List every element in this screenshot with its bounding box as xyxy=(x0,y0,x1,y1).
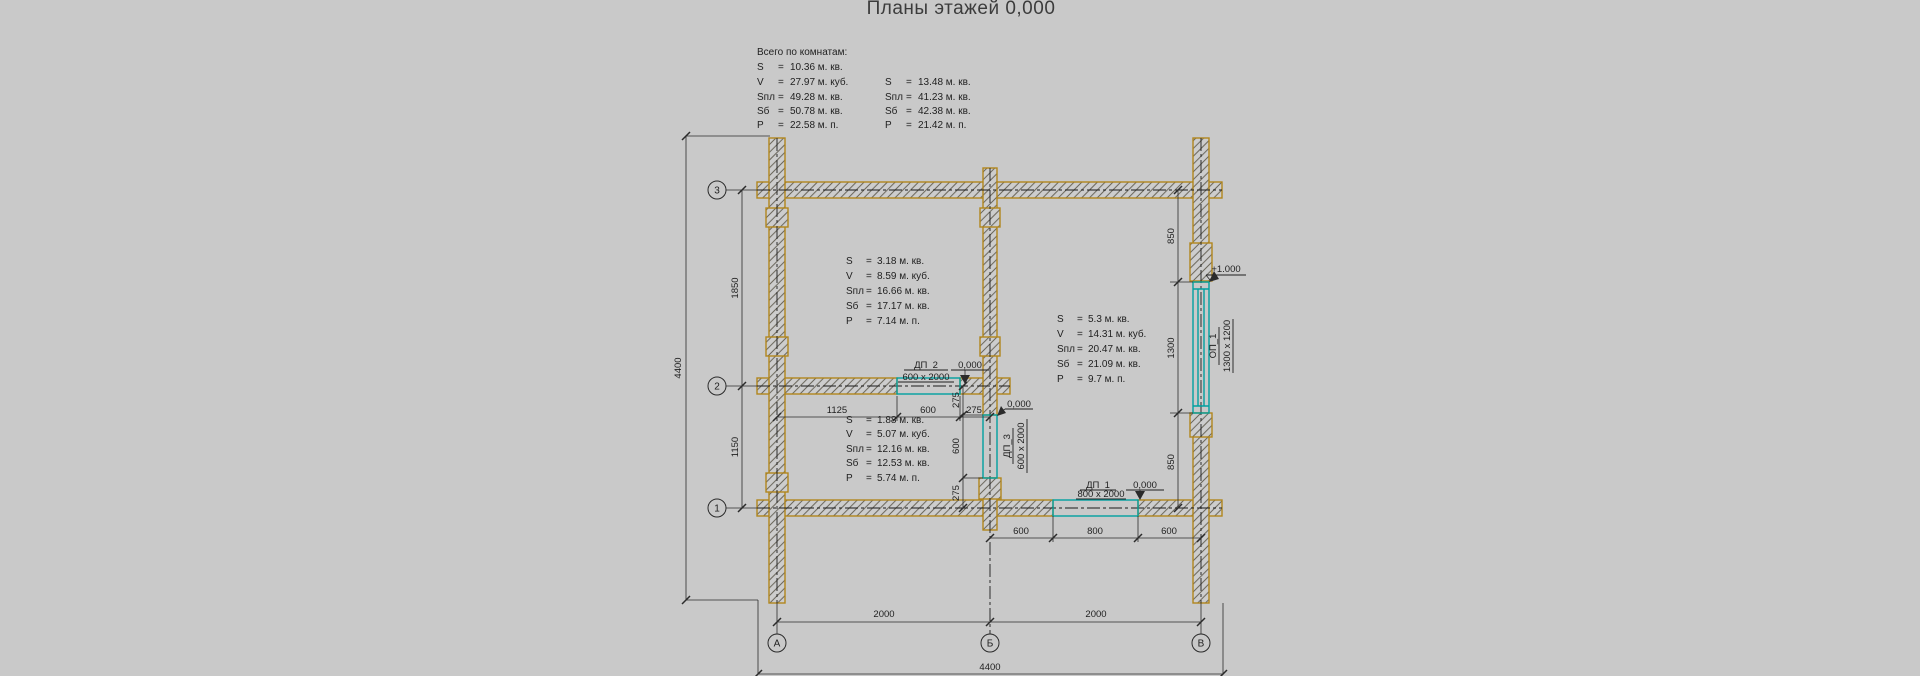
room2-r0-eq: = xyxy=(866,415,872,426)
room2-r1-k: V xyxy=(846,429,853,440)
sum1-r1-eq: = xyxy=(778,77,784,88)
sum2-r3-v: 21.42 м. п. xyxy=(918,120,966,131)
dim-dp1-600-right: 600 xyxy=(1161,526,1177,537)
level-dp2: 0,000 xyxy=(958,360,982,371)
sum1-r3-eq: = xyxy=(778,106,784,117)
room1-r0-v: 3.18 м. кв. xyxy=(877,256,924,267)
room3-r1-eq: = xyxy=(1077,329,1083,340)
dim-dp2-1125: 1125 xyxy=(827,405,847,416)
dim-bottom-2000-left: 2000 xyxy=(873,609,894,620)
sum1-r0-k: S xyxy=(757,62,764,73)
room3-r1-k: V xyxy=(1057,329,1064,340)
sum1-r4-eq: = xyxy=(778,120,784,131)
room3-r4-k: P xyxy=(1057,374,1064,385)
dim-dp3-600: 600 xyxy=(951,438,962,454)
tag-dp1-size: 800 x 2000 xyxy=(1077,489,1124,500)
summary-heading: Всего по комнатам: xyxy=(757,47,847,58)
walls xyxy=(757,138,1222,603)
room3-r0-v: 5.3 м. кв. xyxy=(1088,314,1130,325)
dim-dp3-275-top: 275 xyxy=(951,392,962,408)
sum1-r3-v: 50.78 м. кв. xyxy=(790,106,843,117)
room1-r4-k: P xyxy=(846,316,853,327)
room1-r0-k: S xyxy=(846,256,853,267)
tag-op1-size: 1300 x 1200 xyxy=(1222,320,1233,372)
tag-dp2-size: 600 x 2000 xyxy=(902,372,949,383)
room-info-top-left: S = 3.18 м. кв. V = 8.59 м. куб. Sпл = 1… xyxy=(846,256,930,327)
axis-label-2: 2 xyxy=(714,382,720,393)
dim-dp3-275-bottom: 275 xyxy=(951,485,962,501)
sum2-r2-v: 42.38 м. кв. xyxy=(918,106,971,117)
sum1-r2-v: 49.28 м. кв. xyxy=(790,92,843,103)
room3-r3-eq: = xyxy=(1077,359,1083,370)
tag-dp3: ДП_3 xyxy=(1002,434,1013,458)
room1-r1-k: V xyxy=(846,271,853,282)
summary-block-total: Всего по комнатам: S = 10.36 м. кв. V = … xyxy=(757,47,848,131)
level-dp1: 0,000 xyxy=(1133,480,1157,491)
tag-dp3-size: 600 x 2000 xyxy=(1016,422,1027,469)
room3-r0-eq: = xyxy=(1077,314,1083,325)
room2-r4-k: P xyxy=(846,473,853,484)
room1-r0-eq: = xyxy=(866,256,872,267)
sum2-r1-eq: = xyxy=(906,92,912,103)
room2-r0-k: S xyxy=(846,415,853,426)
room2-r2-k: Sпл xyxy=(846,444,864,455)
axis-label-3: 3 xyxy=(714,186,720,197)
room-info-bottom-left: S = 1.88 м. кв. V = 5.07 м. куб. Sпл = 1… xyxy=(846,415,930,484)
dim-bottom-total: 4400 xyxy=(979,662,1000,673)
room1-r3-eq: = xyxy=(866,301,872,312)
dim-bottom-2000-right: 2000 xyxy=(1085,609,1106,620)
page-title: Планы этажей 0,000 xyxy=(867,0,1056,19)
sum1-r4-v: 22.58 м. п. xyxy=(790,120,838,131)
dim-dp2-275: 275 xyxy=(966,405,982,416)
sum2-r0-k: S xyxy=(885,77,892,88)
room1-r4-eq: = xyxy=(866,316,872,327)
room2-r1-eq: = xyxy=(866,429,872,440)
dim-right-850-bottom: 850 xyxy=(1166,454,1177,470)
dim-left-1150: 1150 xyxy=(730,437,741,457)
room1-r1-v: 8.59 м. куб. xyxy=(877,270,930,282)
room1-r4-v: 7.14 м. п. xyxy=(877,316,920,327)
sum1-r1-k: V xyxy=(757,77,764,88)
room2-r2-v: 12.16 м. кв. xyxy=(877,444,930,455)
sum1-r2-k: Sпл xyxy=(757,92,775,103)
axis-label-a: А xyxy=(774,639,781,650)
axis-label-v: В xyxy=(1198,639,1205,650)
sum1-r4-k: P xyxy=(757,120,764,131)
room2-r3-v: 12.53 м. кв. xyxy=(877,458,930,469)
room2-r3-k: Sб xyxy=(846,457,859,469)
dim-dp1-800: 800 xyxy=(1087,526,1103,537)
level-op1: +1.000 xyxy=(1211,264,1240,275)
room3-r0-k: S xyxy=(1057,314,1064,325)
room1-r3-v: 17.17 м. кв. xyxy=(877,301,930,312)
sum1-r0-eq: = xyxy=(778,62,784,73)
room2-r3-eq: = xyxy=(866,458,872,469)
room2-r1-v: 5.07 м. куб. xyxy=(877,428,930,440)
sum2-r2-eq: = xyxy=(906,106,912,117)
openings xyxy=(897,282,1209,516)
door-dp3 xyxy=(983,415,997,478)
axis-label-b: Б xyxy=(987,639,994,650)
sum1-r0-v: 10.36 м. кв. xyxy=(790,62,843,73)
room1-r2-eq: = xyxy=(866,286,872,297)
room2-r4-v: 5.74 м. п. xyxy=(877,473,920,484)
dim-right-1300: 1300 xyxy=(1166,337,1177,358)
room2-r2-eq: = xyxy=(866,444,872,455)
room3-r3-v: 21.09 м. кв. xyxy=(1088,359,1141,370)
room3-r4-eq: = xyxy=(1077,374,1083,385)
sum2-r2-k: Sб xyxy=(885,105,898,117)
dim-left-total: 4400 xyxy=(673,357,684,378)
tag-dp2: ДП_2 xyxy=(914,360,938,371)
room-info-right: S = 5.3 м. кв. V = 14.31 м. куб. Sпл = 2… xyxy=(1057,314,1146,385)
axis-label-1: 1 xyxy=(714,504,720,515)
dim-right-850-top: 850 xyxy=(1166,228,1177,244)
room1-r1-eq: = xyxy=(866,271,872,282)
sum1-r1-v: 27.97 м. куб. xyxy=(790,76,848,88)
room3-r1-v: 14.31 м. куб. xyxy=(1088,328,1146,340)
tag-op1: ОП_1 xyxy=(1208,334,1219,359)
sum2-r3-k: P xyxy=(885,120,892,131)
level-dp3: 0,000 xyxy=(1007,399,1031,410)
sum1-r3-k: Sб xyxy=(757,105,770,117)
room2-r4-eq: = xyxy=(866,473,872,484)
room1-r2-v: 16.66 м. кв. xyxy=(877,286,930,297)
room1-r3-k: Sб xyxy=(846,300,859,312)
room3-r2-k: Sпл xyxy=(1057,344,1075,355)
room3-r4-v: 9.7 м. п. xyxy=(1088,374,1125,385)
summary-block-2: S = 13.48 м. кв. Sпл = 41.23 м. кв. Sб =… xyxy=(885,77,971,131)
room2-r0-v: 1.88 м. кв. xyxy=(877,415,924,426)
sum2-r3-eq: = xyxy=(906,120,912,131)
sum1-r2-eq: = xyxy=(778,92,784,103)
sum2-r0-eq: = xyxy=(906,77,912,88)
sum2-r0-v: 13.48 м. кв. xyxy=(918,77,971,88)
sum2-r1-v: 41.23 м. кв. xyxy=(918,92,971,103)
floor-plan-svg: Планы этажей 0,000 xyxy=(0,0,1920,676)
room3-r3-k: Sб xyxy=(1057,358,1070,370)
dim-left-1850: 1850 xyxy=(730,277,741,298)
drawing-canvas: Планы этажей 0,000 xyxy=(0,0,1920,676)
room3-r2-eq: = xyxy=(1077,344,1083,355)
dim-dp1-600-left: 600 xyxy=(1013,526,1029,537)
room1-r2-k: Sпл xyxy=(846,286,864,297)
room3-r2-v: 20.47 м. кв. xyxy=(1088,344,1141,355)
sum2-r1-k: Sпл xyxy=(885,92,903,103)
